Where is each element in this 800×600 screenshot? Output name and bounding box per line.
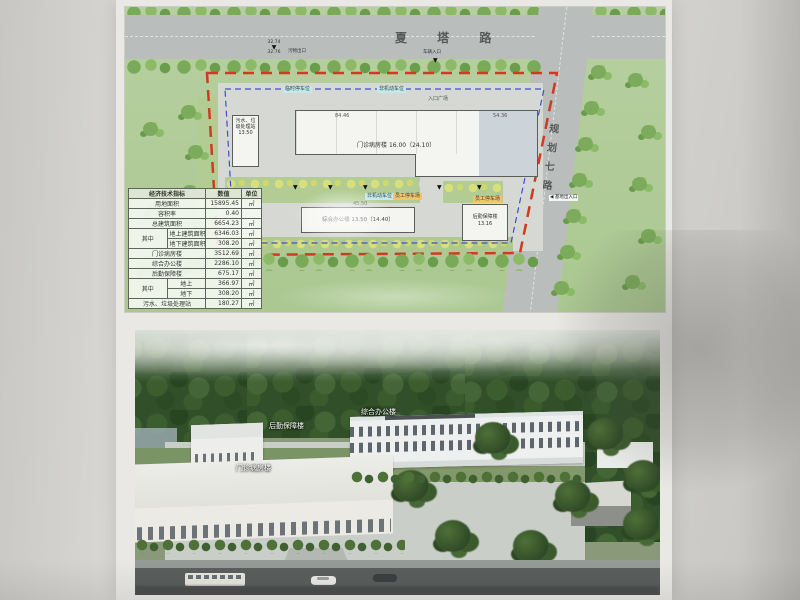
cell-label: 污水、垃圾处理站 — [129, 299, 206, 309]
cell-col-unit: 单位 — [242, 189, 262, 199]
tree — [625, 460, 660, 492]
cell-unit: ㎡ — [242, 259, 262, 269]
staff-parking-tag: 员工停车场 — [473, 196, 502, 203]
cell-title: 经济技术指标 — [129, 189, 206, 199]
foreground-shadow — [135, 586, 660, 595]
cell-value: 308.20 — [206, 289, 242, 299]
entry-plaza-label: 入口广场 — [428, 96, 448, 102]
triangle-marker-icon: ▼ — [477, 185, 482, 190]
table-row: 容积率0.40 — [129, 209, 262, 219]
cell-unit: ㎡ — [242, 229, 262, 239]
cell-value: 180.27 — [206, 299, 242, 309]
tree — [181, 105, 196, 119]
tree — [554, 281, 569, 295]
table-row: 其中地上366.97㎡ — [129, 279, 262, 289]
cell-unit: ㎡ — [242, 249, 262, 259]
tree — [143, 122, 158, 136]
sidewalk — [135, 560, 660, 568]
cell-unit: ㎡ — [242, 269, 262, 279]
cell-unit — [242, 209, 262, 219]
cell-label: 地下建筑面积 — [167, 239, 206, 249]
nonmotor-parking-tag: 非机动车位 — [377, 86, 406, 93]
tree — [587, 418, 623, 450]
cell-group: 其中 — [129, 229, 168, 249]
tree — [641, 125, 656, 139]
staff-parking-tag: 员工停车场 — [393, 193, 422, 200]
tree — [560, 245, 575, 259]
table-row: 用地面积15895.45㎡ — [129, 199, 262, 209]
mist-haze — [135, 330, 660, 382]
cell-value: 3512.69 — [206, 249, 242, 259]
cell-unit: ㎡ — [242, 279, 262, 289]
cell-value: 6346.03 — [206, 229, 242, 239]
cell-unit: ㎡ — [242, 289, 262, 299]
table-row: 总建筑面积6654.23㎡ — [129, 219, 262, 229]
window-band — [350, 437, 583, 453]
photo-of-site-plan-poster: 夏 塔 路 规划七路 门诊病房楼 16.00（24.10） — [0, 0, 800, 600]
cell-unit: ㎡ — [242, 239, 262, 249]
vignette — [0, 0, 120, 600]
table-row: 门诊病房楼3512.69㎡ — [129, 249, 262, 259]
triangle-marker-icon: ▼ — [437, 185, 442, 190]
cell-label: 地上建筑面积 — [167, 229, 206, 239]
cell-group: 其中 — [129, 279, 168, 299]
tree — [641, 229, 656, 243]
small-tree-row — [350, 470, 585, 484]
table-row: 后勤保障楼675.17㎡ — [129, 269, 262, 279]
tree — [555, 480, 591, 512]
triangle-marker-icon: ▼ — [293, 185, 298, 190]
tree — [623, 508, 659, 540]
triangle-marker-icon: ▼ — [363, 185, 368, 190]
cell-value: 308.20 — [206, 239, 242, 249]
cell-label: 容积率 — [129, 209, 206, 219]
main-building-label: 门诊病房楼 16.00（24.10） — [357, 140, 435, 149]
cell-value: 2286.10 — [206, 259, 242, 269]
tree — [632, 177, 647, 191]
building-shaded-wing — [479, 154, 537, 176]
window-band — [350, 421, 583, 437]
main-building-lower-wing — [415, 154, 538, 177]
cell-unit: ㎡ — [242, 219, 262, 229]
car-dark — [373, 574, 397, 582]
cell-label: 总建筑面积 — [129, 219, 206, 229]
waste-exit-marker: 32.74 ▼ 32.76 — [259, 40, 289, 56]
tree — [584, 101, 599, 115]
dimension-text: 45.50 — [353, 201, 367, 207]
office-building-tag: 综合办公楼 — [361, 407, 396, 417]
arrow-left-icon: ◀ — [550, 195, 553, 200]
tree — [572, 173, 587, 187]
building-shaded-wing — [479, 111, 537, 154]
tree — [628, 73, 643, 87]
main-building-tag: 门诊病房楼 — [236, 463, 271, 473]
temp-parking-tag: 临时停车位 — [283, 86, 312, 93]
triangle-marker-icon: ▼ — [433, 58, 438, 63]
cell-label: 地下 — [167, 289, 206, 299]
tree — [475, 422, 511, 454]
cell-label: 用地面积 — [129, 199, 206, 209]
tree — [625, 275, 640, 289]
table-row: 其中地上建筑面积6346.03㎡ — [129, 229, 262, 239]
site-entrance-marker: ◀ 基地出入口 — [549, 195, 578, 201]
cell-label: 综合办公楼 — [129, 259, 206, 269]
table-row: 污水、垃圾处理站180.27㎡ — [129, 299, 262, 309]
tree — [591, 65, 606, 79]
aerial-rendering-panel: 综合办公楼 后勤保障楼 门诊病房楼 — [135, 330, 660, 595]
car-white — [311, 576, 336, 585]
cell-value: 6654.23 — [206, 219, 242, 229]
tree — [513, 530, 549, 562]
cell-label: 后勤保障楼 — [129, 269, 206, 279]
dimension-text: 54.36 — [493, 113, 507, 119]
vehicle-entrance-label: 车辆入口 — [423, 50, 441, 55]
cell-value: 366.97 — [206, 279, 242, 289]
cell-unit: ㎡ — [242, 299, 262, 309]
cell-value: 15895.45 — [206, 199, 242, 209]
site-plan-panel: 夏 塔 路 规划七路 门诊病房楼 16.00（24.10） — [125, 7, 665, 312]
small-tree-row — [135, 538, 405, 554]
logistics-building-tag: 后勤保障楼 — [269, 421, 304, 431]
waste-exit-label: 污物出口 — [288, 49, 306, 54]
edge-shadow — [740, 0, 800, 600]
bus — [185, 573, 245, 586]
cell-col-value: 数值 — [206, 189, 242, 199]
cell-value: 675.17 — [206, 269, 242, 279]
tree — [566, 209, 581, 223]
tree — [578, 137, 593, 151]
indicators-table: 经济技术指标 数值 单位 用地面积15895.45㎡ 容积率0.40 总建筑面积… — [128, 188, 262, 309]
bus-windows — [188, 575, 242, 579]
cell-unit: ㎡ — [242, 199, 262, 209]
office-building-shape: 综合办公楼 13.50（14.40） — [301, 207, 415, 233]
dimension-text: 84.46 — [335, 113, 349, 119]
nonmotor-parking-tag: 非机动车位 — [365, 193, 394, 200]
table-row: 综合办公楼2286.10㎡ — [129, 259, 262, 269]
triangle-marker-icon: ▼ — [328, 185, 333, 190]
roof — [191, 423, 263, 440]
logistics-building-shape: 后勤保障楼 13.16 — [462, 204, 508, 241]
cell-label: 门诊病房楼 — [129, 249, 206, 259]
cell-label: 地上 — [167, 279, 206, 289]
tree — [188, 145, 203, 159]
cell-value: 0.40 — [206, 209, 242, 219]
tree — [435, 520, 471, 552]
car-glass — [317, 577, 329, 580]
table-header-row: 经济技术指标 数值 单位 — [129, 189, 262, 199]
sewage-station-shape: 污水、垃圾处理站 13.50 — [232, 115, 259, 167]
